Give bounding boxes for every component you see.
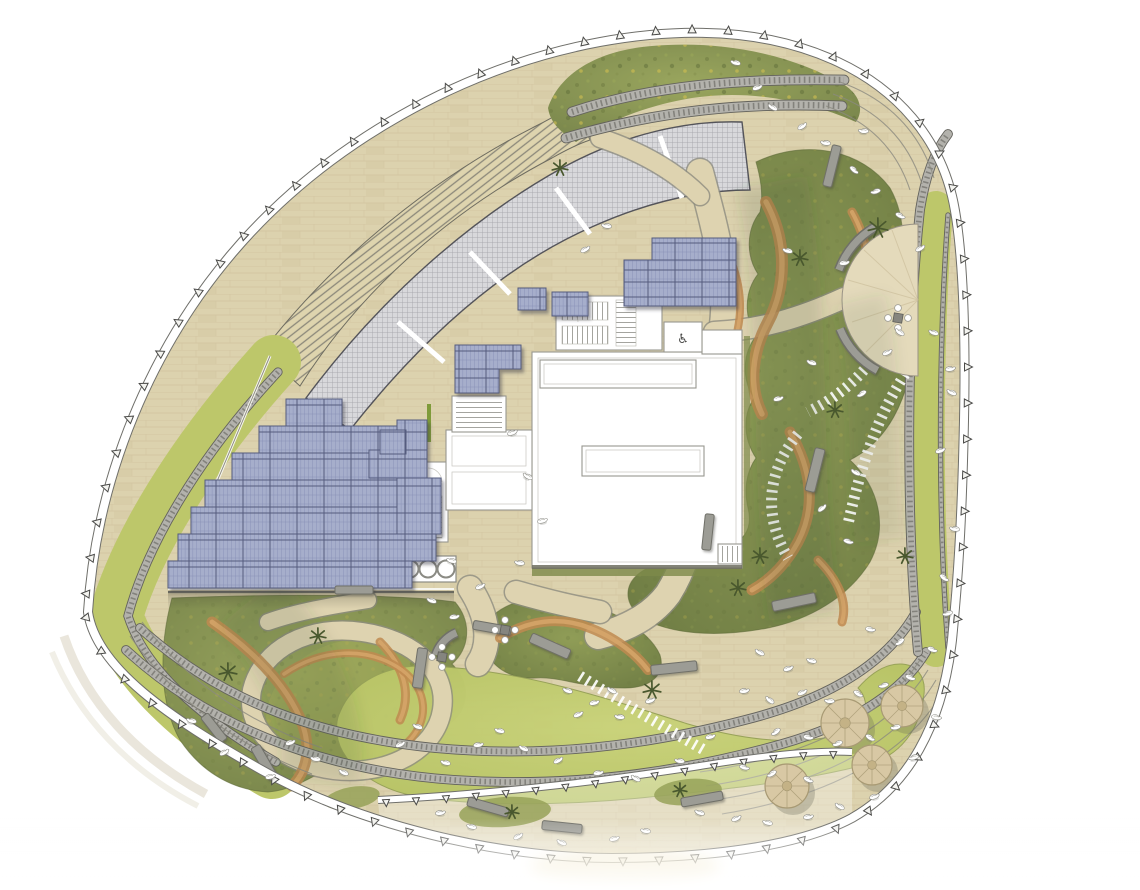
bench <box>335 586 373 594</box>
accessible-room: ♿ <box>664 322 702 352</box>
north-long-stair <box>452 396 506 432</box>
roof-extension <box>702 330 742 354</box>
chair <box>512 627 519 634</box>
vent-circle <box>420 561 437 578</box>
table <box>437 652 447 662</box>
chair <box>492 627 499 634</box>
solar-panel <box>552 292 588 316</box>
solar-panel <box>624 260 736 282</box>
solar-panel <box>397 478 441 534</box>
solar-panel <box>652 238 736 260</box>
chair <box>502 617 509 624</box>
solar-panel <box>624 282 736 306</box>
east-planting-strip <box>744 336 750 568</box>
south-planting-strip <box>532 568 742 576</box>
mid-rooms <box>446 430 532 510</box>
solar-panel <box>455 345 521 369</box>
table <box>893 313 903 323</box>
chair <box>502 637 509 644</box>
chair <box>439 644 446 651</box>
skylight-south <box>582 446 704 476</box>
chair <box>885 315 892 322</box>
accessible-icon: ♿ <box>677 332 689 347</box>
chair <box>429 654 436 661</box>
solar-panel <box>380 430 406 454</box>
roof-south-edge <box>532 565 742 569</box>
chair <box>895 305 902 312</box>
east-lawn-band <box>928 208 936 650</box>
solar-panel <box>455 369 499 393</box>
site-plan-stage: ♿ ♿ <box>0 0 1140 890</box>
solar-panel <box>259 426 397 453</box>
chair <box>439 664 446 671</box>
solar-panel <box>168 561 412 588</box>
bottom-fade <box>0 818 1140 890</box>
solar-panel <box>178 534 436 561</box>
roof-garden-site-plan: ♿ ♿ <box>0 0 1140 890</box>
solar-panel <box>518 288 546 310</box>
chair <box>449 654 456 661</box>
table <box>500 625 510 635</box>
solar-panel <box>286 399 342 426</box>
chair <box>905 315 912 322</box>
planter-bar <box>427 404 431 442</box>
